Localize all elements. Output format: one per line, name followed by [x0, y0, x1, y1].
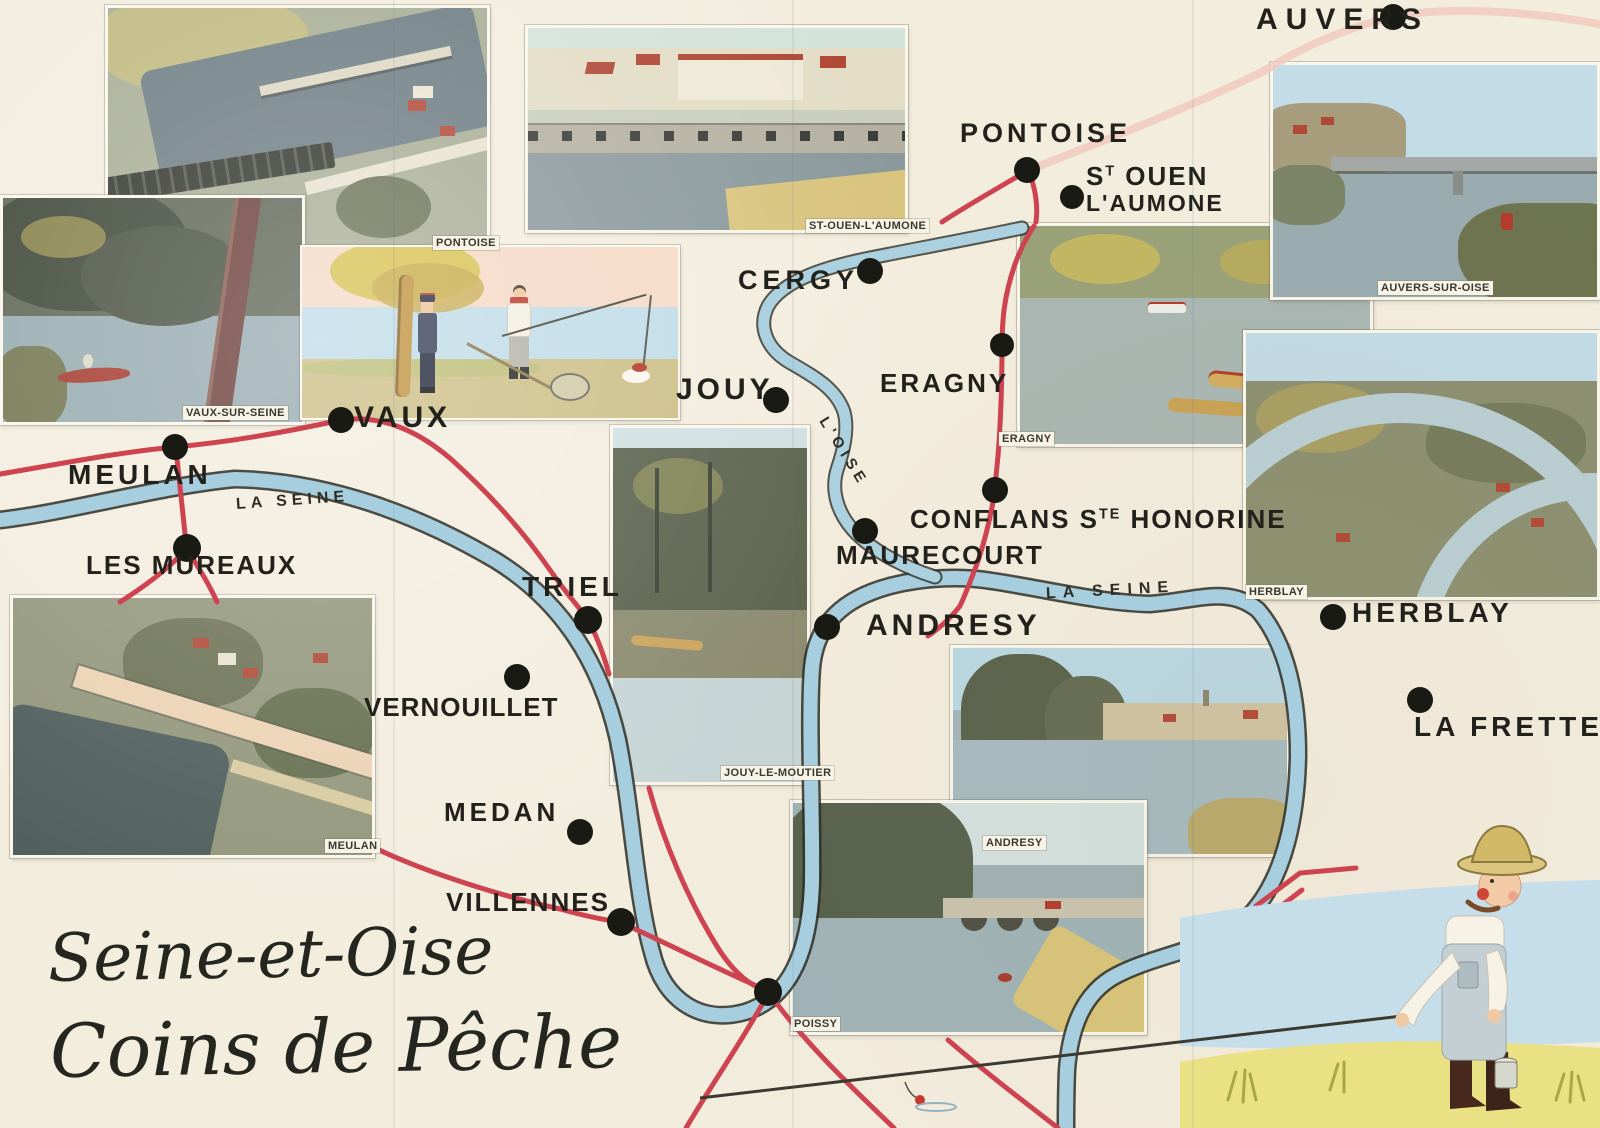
town-label-pontoise: PONTOISE	[960, 119, 1131, 147]
fold-crease	[393, 0, 395, 1128]
road-pontoise-st-ouen	[942, 172, 1025, 222]
tin-can	[1495, 1062, 1517, 1088]
fold-crease	[792, 0, 794, 1128]
photo-caption-vaux-sur-seine: VAUX-SUR-SEINE	[183, 406, 288, 420]
fold-crease	[1192, 0, 1194, 1128]
town-label-auvers: AUVERS	[1256, 4, 1429, 36]
fisherman-cartoon	[700, 826, 1600, 1128]
photo-caption-andresy: ANDRESY	[983, 836, 1046, 850]
town-dot-pontoise	[1014, 157, 1040, 183]
cheek	[1508, 891, 1518, 901]
town-label-maurecourt: MAURECOURT	[836, 542, 1044, 569]
photo-caption-poissy: POISSY	[791, 1017, 840, 1031]
road-poissy-east	[948, 1040, 1058, 1128]
fishing-line	[905, 1082, 917, 1098]
town-dot-meulan	[162, 434, 188, 460]
road-poissy-se	[770, 994, 894, 1128]
town-dot-la-frette	[1407, 687, 1433, 713]
postcard-title-line2: Coins de Pêche	[49, 999, 622, 1095]
town-dot-andresy	[814, 614, 840, 640]
town-label-herblay: HERBLAY	[1352, 598, 1513, 627]
postcard-map: AUVERS PONTOISE ST OUEN L'AUMONE CERGY J…	[0, 0, 1600, 1128]
town-dot-triel	[574, 606, 602, 634]
hat-crown	[1472, 826, 1532, 862]
photo-caption-herblay: HERBLAY	[1246, 585, 1307, 599]
hand	[1487, 1009, 1501, 1023]
road-meulan-vaux-triel	[0, 419, 609, 674]
town-label-conflans-ste-honorine: CONFLANS STE HONORINE	[910, 506, 1287, 533]
town-label-andresy: ANDRESY	[866, 610, 1041, 642]
postcard-title-line1: Seine-et-Oise	[47, 912, 494, 997]
photo-caption-pontoise: PONTOISE	[433, 236, 499, 250]
photo-caption-meulan: MEULAN	[325, 839, 380, 853]
water-band	[1180, 880, 1600, 1049]
town-label-eragny: ERAGNY	[880, 370, 1009, 397]
hand	[1395, 1013, 1409, 1027]
red-nose	[1477, 888, 1489, 900]
town-dot-vaux	[328, 407, 354, 433]
town-dot-cergy	[857, 258, 883, 284]
town-dot-villennes	[607, 908, 635, 936]
overalls-pocket	[1458, 962, 1478, 988]
town-label-medan: MEDAN	[444, 799, 559, 826]
st-ouen-line1: ST OUEN	[1086, 163, 1224, 190]
town-label-les-mureaux: LES MUREAUX	[86, 552, 297, 579]
town-dot-vernouillet	[504, 664, 530, 690]
ripple	[916, 1103, 956, 1111]
town-label-st-ouen-l-aumone: ST OUEN L'AUMONE	[1086, 163, 1224, 215]
town-label-vaux: VAUX	[354, 402, 451, 434]
photo-caption-auvers-sur-oise: AUVERS-SUR-OISE	[1378, 281, 1493, 295]
photo-caption-eragny: ERAGNY	[999, 432, 1054, 446]
town-label-cergy: CERGY	[738, 266, 859, 294]
photo-caption-jouy-le-moutier: JOUY-LE-MOUTIER	[721, 766, 834, 780]
photo-caption-st-ouen-l-aumone: ST-OUEN-L'AUMONE	[806, 219, 929, 233]
town-label-la-frette: LA FRETTE	[1414, 712, 1600, 741]
town-label-triel: TRIEL	[522, 572, 623, 601]
eye	[1490, 879, 1494, 883]
town-dot-herblay	[1320, 604, 1346, 630]
town-dot-poissy	[754, 978, 782, 1006]
town-dot-eragny	[990, 333, 1014, 357]
town-label-jouy: JOUY	[676, 374, 774, 406]
st-ouen-line2: L'AUMONE	[1086, 191, 1224, 215]
town-dot-medan	[567, 819, 593, 845]
town-label-meulan: MEULAN	[68, 460, 212, 489]
town-dot-st-ouen	[1060, 185, 1084, 209]
town-dot-conflans	[982, 477, 1008, 503]
